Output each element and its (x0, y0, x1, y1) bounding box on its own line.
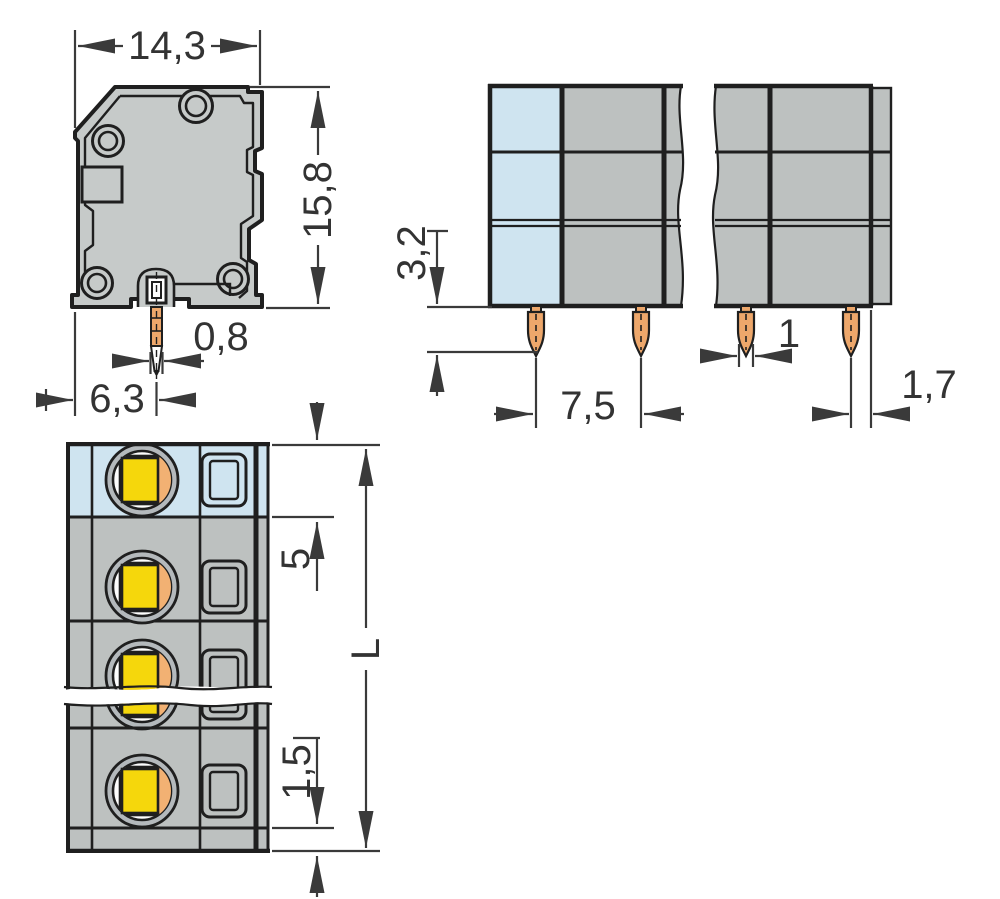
solder-pin (843, 306, 859, 356)
top-view-dimensions: 5 L 1,5 (272, 402, 388, 897)
dim-end-offset-label: 1,7 (901, 363, 957, 407)
solder-pin (528, 306, 544, 356)
screw-boss-lower-left (82, 268, 113, 299)
push-button[interactable] (122, 654, 158, 698)
dim-total-length-label: L (344, 638, 388, 660)
side-latch (82, 167, 122, 202)
dim-pin-pitch-label: 7,5 (560, 384, 616, 428)
front-view: 3,2 7,5 1 1,7 (390, 84, 957, 428)
technical-drawing: 14,3 15,8 0,8 6,3 (0, 0, 1000, 899)
top-view: 5 L 1,5 (64, 402, 388, 897)
dim-bottom-edge-label: 1,5 (275, 744, 319, 800)
first-pole-front (490, 86, 562, 306)
front-view-right-section (713, 86, 891, 306)
push-button[interactable] (122, 565, 158, 609)
solder-pins-front (528, 306, 859, 356)
dim-pin-length-label: 3,2 (390, 225, 434, 281)
solder-pin (738, 306, 754, 356)
screw-boss-upper-left (93, 126, 124, 157)
dim-front-pin-width-label: 1 (778, 312, 800, 356)
push-button[interactable] (122, 458, 158, 502)
side-view: 14,3 15,8 0,8 6,3 (46, 24, 340, 421)
solder-pin (633, 306, 649, 356)
front-view-left-section (488, 84, 683, 308)
screw-boss-lower-right (218, 264, 249, 295)
dim-width-label: 14,3 (128, 24, 206, 68)
dim-pin-offset-label: 6,3 (89, 377, 145, 421)
push-button[interactable] (122, 769, 158, 813)
top-view-upper-section (66, 444, 270, 712)
screw-boss-top (180, 90, 213, 123)
drawing-svg: 14,3 15,8 0,8 6,3 (0, 0, 1000, 899)
dim-height-label: 15,8 (296, 161, 340, 239)
dim-first-pole-offset-label: 5 (274, 548, 318, 570)
end-plate (871, 88, 891, 304)
dim-pin-width-label: 0,8 (193, 315, 249, 359)
